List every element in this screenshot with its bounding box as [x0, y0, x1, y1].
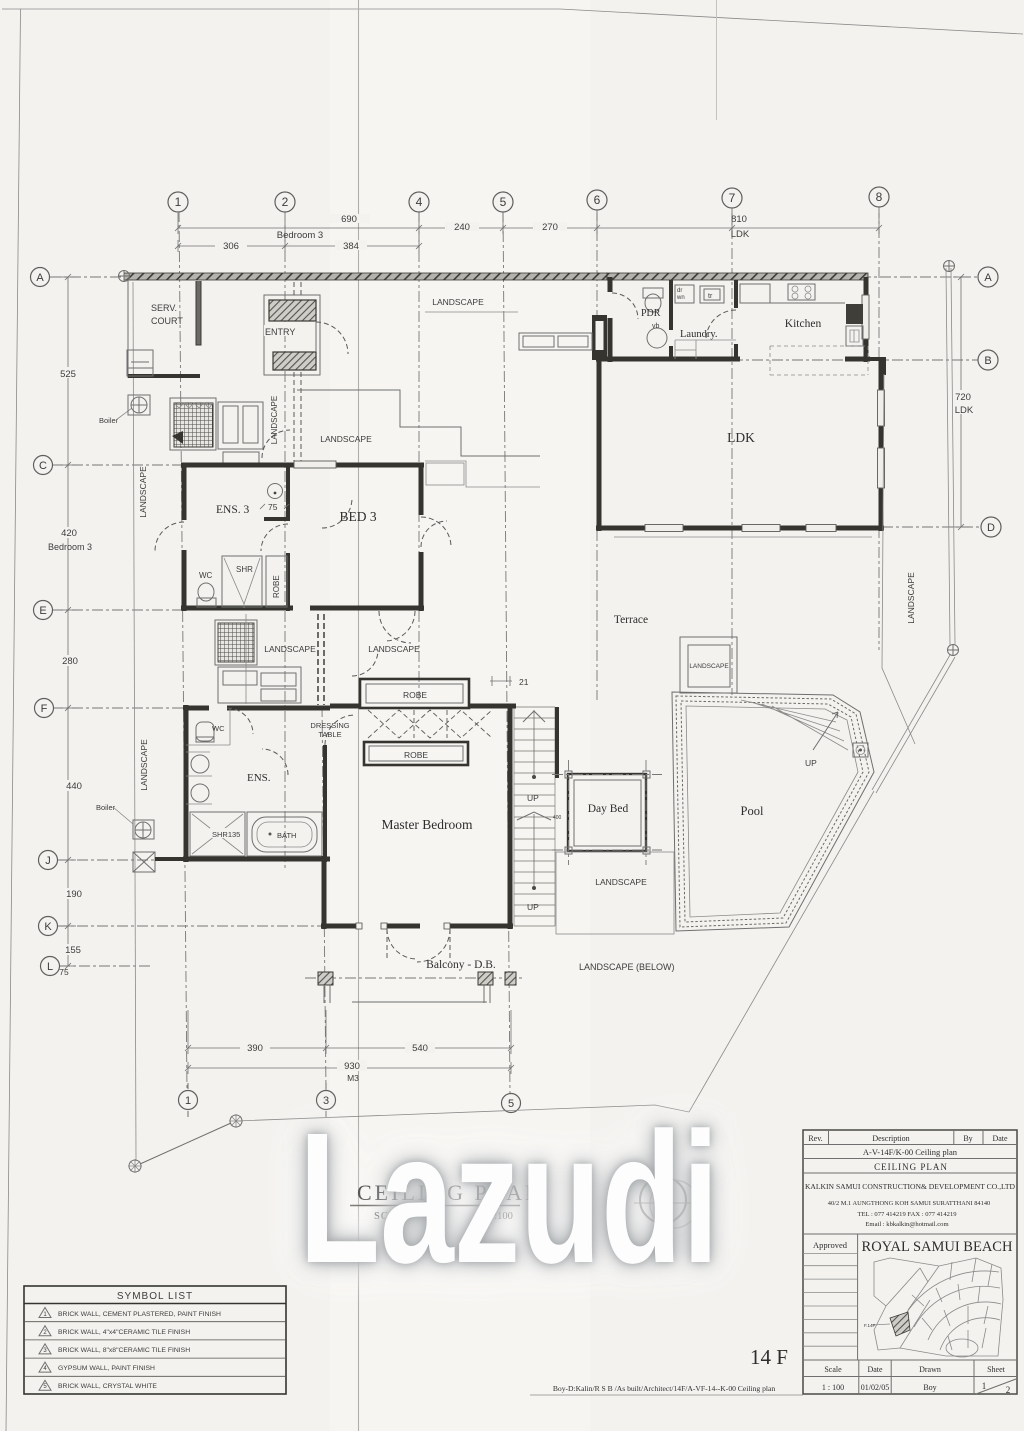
- svg-text:930: 930: [344, 1061, 360, 1072]
- svg-text:UP: UP: [527, 793, 539, 803]
- svg-text:UP: UP: [805, 758, 817, 768]
- svg-text:Description: Description: [872, 1134, 909, 1143]
- svg-text:LANDSCAPE: LANDSCAPE: [270, 396, 279, 444]
- svg-text:A-V-14F/K-00 Ceiling plan: A-V-14F/K-00 Ceiling plan: [863, 1147, 958, 1157]
- svg-text:280: 280: [62, 656, 78, 667]
- svg-text:CEILING PLAN: CEILING PLAN: [874, 1162, 948, 1172]
- svg-text:Boy-D:Kalin/R S B /As built/Ar: Boy-D:Kalin/R S B /As built/Architect/14…: [553, 1384, 776, 1393]
- svg-text:720: 720: [955, 392, 971, 403]
- svg-text:UP: UP: [527, 902, 539, 912]
- svg-text:21: 21: [519, 677, 529, 687]
- svg-text:TEL : 077 414219 FAX : 077 4: TEL : 077 414219 FAX : 077 414219: [857, 1211, 957, 1218]
- svg-text:E: E: [39, 605, 46, 617]
- svg-text:8: 8: [876, 190, 883, 204]
- svg-text:Terrace: Terrace: [614, 614, 648, 626]
- svg-text:6: 6: [594, 193, 601, 207]
- svg-text:LANDSCAPE: LANDSCAPE: [320, 434, 372, 444]
- svg-text:LANDSCAPE (BELOW): LANDSCAPE (BELOW): [579, 962, 675, 972]
- svg-text:KALKIN SAMUI CONSTRUCTION& DEV: KALKIN SAMUI CONSTRUCTION& DEVELOPMENT C…: [805, 1182, 1016, 1191]
- svg-text:810: 810: [731, 214, 747, 225]
- svg-text:306: 306: [223, 241, 239, 252]
- svg-text:540: 540: [412, 1043, 428, 1054]
- svg-text:270: 270: [542, 222, 558, 233]
- svg-text:1: 1: [175, 195, 182, 209]
- svg-text:ENS. 3: ENS. 3: [216, 504, 249, 516]
- svg-text:ROYAL SAMUI BEACH: ROYAL SAMUI BEACH: [862, 1239, 1013, 1255]
- svg-text:Master Bedroom: Master Bedroom: [381, 817, 473, 832]
- svg-text:Bedroom 3: Bedroom 3: [48, 542, 92, 552]
- svg-text:TABLE: TABLE: [318, 730, 341, 739]
- svg-text:BRICK WALL, CEMENT PLASTERED,: BRICK WALL, CEMENT PLASTERED, PAINT FINI…: [58, 1311, 221, 1318]
- svg-text:B: B: [984, 355, 991, 367]
- svg-text:Approved: Approved: [813, 1240, 848, 1250]
- svg-text:SHR135: SHR135: [212, 830, 240, 839]
- svg-text:F: F: [41, 703, 48, 715]
- svg-text:LANDSCAPE: LANDSCAPE: [432, 297, 484, 307]
- svg-text:vb: vb: [652, 323, 660, 330]
- svg-text:Pool: Pool: [741, 804, 764, 818]
- svg-text:75: 75: [59, 967, 69, 977]
- svg-text:Boiler: Boiler: [96, 803, 116, 812]
- svg-text:K: K: [44, 921, 52, 933]
- svg-text:BRICK WALL, CRYSTAL WHITE: BRICK WALL, CRYSTAL WHITE: [58, 1383, 157, 1390]
- svg-text:WC: WC: [212, 724, 225, 733]
- svg-text:tr: tr: [708, 293, 713, 300]
- svg-text:BATH: BATH: [277, 831, 296, 840]
- svg-text:Rev.: Rev.: [808, 1134, 822, 1143]
- svg-text:Boiler: Boiler: [99, 416, 119, 425]
- svg-text:A: A: [36, 272, 44, 284]
- svg-text:75: 75: [268, 502, 278, 512]
- svg-text:Laundry.: Laundry.: [680, 329, 718, 340]
- svg-text:ENTRY: ENTRY: [265, 327, 295, 337]
- svg-text:ROBE: ROBE: [404, 750, 428, 760]
- svg-text:LANDSCAPE: LANDSCAPE: [264, 644, 316, 654]
- svg-text:01/02/05: 01/02/05: [861, 1383, 889, 1392]
- svg-text:390: 390: [247, 1043, 263, 1054]
- svg-text:Lazudi: Lazudi: [299, 1095, 719, 1302]
- svg-text:Day Bed: Day Bed: [588, 803, 629, 815]
- svg-text:240: 240: [454, 222, 470, 233]
- svg-text:ROBE: ROBE: [272, 575, 281, 598]
- svg-text:155: 155: [65, 945, 81, 956]
- svg-text:14 F: 14 F: [750, 1345, 788, 1369]
- svg-text:690: 690: [341, 214, 357, 225]
- svg-text:Date: Date: [867, 1365, 883, 1374]
- svg-text:525: 525: [60, 369, 76, 380]
- svg-text:7: 7: [729, 191, 736, 205]
- svg-text:LANDSCAPE: LANDSCAPE: [689, 663, 729, 670]
- svg-text:PDR: PDR: [641, 308, 661, 319]
- svg-text:LDK: LDK: [727, 430, 755, 445]
- svg-text:A: A: [984, 272, 992, 284]
- svg-text:440: 440: [66, 781, 82, 792]
- svg-text:Kitchen: Kitchen: [785, 318, 822, 330]
- svg-text:dr: dr: [677, 288, 682, 294]
- svg-text:By: By: [963, 1134, 972, 1143]
- svg-text:Boy: Boy: [923, 1383, 936, 1392]
- svg-text:5: 5: [500, 195, 507, 209]
- svg-text:420: 420: [61, 528, 77, 539]
- svg-text:LANDSCAPE: LANDSCAPE: [368, 644, 420, 654]
- svg-text:ENS.: ENS.: [247, 772, 271, 784]
- svg-text:BRICK WALL, 8"x8"CERAMIC TILE: BRICK WALL, 8"x8"CERAMIC TILE FINISH: [58, 1347, 190, 1354]
- svg-text:LANDSCAPE: LANDSCAPE: [139, 739, 149, 791]
- svg-text:LDK: LDK: [731, 229, 750, 240]
- svg-text:J: J: [45, 855, 51, 867]
- svg-text:LANDSCAPE: LANDSCAPE: [595, 877, 647, 887]
- svg-text:40/2 M.1 AUNGTHONG KOH SAMUI S: 40/2 M.1 AUNGTHONG KOH SAMUI SURATTHANI …: [828, 1200, 990, 1207]
- svg-text:400: 400: [553, 815, 562, 821]
- svg-text:L: L: [47, 961, 53, 973]
- svg-text:190: 190: [66, 889, 82, 900]
- svg-text:384: 384: [343, 241, 359, 252]
- svg-text:BRICK WALL, 4"x4"CERAMIC TILE: BRICK WALL, 4"x4"CERAMIC TILE FINISH: [58, 1329, 190, 1336]
- svg-text:1: 1: [982, 1381, 987, 1391]
- svg-text:LDK: LDK: [955, 405, 974, 416]
- svg-text:Drawn: Drawn: [919, 1365, 941, 1374]
- svg-text:D: D: [987, 522, 995, 534]
- svg-text:SYMBOL LIST: SYMBOL LIST: [117, 1291, 193, 1302]
- svg-text:GYPSUM WALL, PAINT FINISH: GYPSUM WALL, PAINT FINISH: [58, 1365, 155, 1372]
- svg-text:SHR: SHR: [236, 565, 253, 574]
- svg-text:M3: M3: [347, 1073, 359, 1083]
- svg-text:WC: WC: [199, 571, 213, 580]
- svg-text:wn: wn: [676, 295, 685, 301]
- svg-text:Bedroom 3: Bedroom 3: [277, 230, 323, 241]
- svg-text:4: 4: [416, 195, 423, 209]
- svg-text:Date: Date: [992, 1134, 1008, 1143]
- svg-text:SERV.: SERV.: [151, 303, 177, 313]
- svg-text:1 : 100: 1 : 100: [822, 1383, 844, 1392]
- svg-text:2: 2: [282, 195, 289, 209]
- svg-text:ROBE: ROBE: [403, 690, 427, 700]
- svg-text:F.14F: F.14F: [864, 1323, 876, 1328]
- svg-text:C: C: [39, 460, 47, 472]
- svg-text:Balcony - D.B.: Balcony - D.B.: [426, 959, 496, 971]
- svg-text:2: 2: [1006, 1385, 1011, 1395]
- svg-text:1: 1: [185, 1095, 191, 1107]
- svg-text:LANDSCAPE: LANDSCAPE: [906, 572, 916, 624]
- svg-text:COURT: COURT: [151, 316, 183, 326]
- svg-text:Sheet: Sheet: [987, 1365, 1006, 1374]
- svg-text:Scale: Scale: [824, 1365, 842, 1374]
- svg-text:LANDSCAPE: LANDSCAPE: [138, 466, 148, 518]
- svg-text:Email : kbkalkin@hotmail.com: Email : kbkalkin@hotmail.com: [865, 1221, 949, 1228]
